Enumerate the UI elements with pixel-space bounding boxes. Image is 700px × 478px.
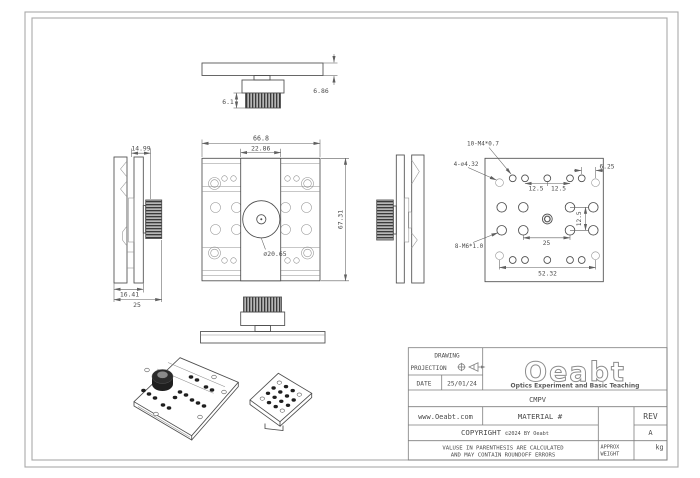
weight-unit: kg xyxy=(656,444,664,452)
top-view-knob-flange xyxy=(242,80,284,93)
iso-assembled-knob xyxy=(152,370,173,392)
disclaimer-line2: AND MAY CONTAIN ROUNDOFF ERRORS xyxy=(451,453,555,459)
dim-left-top: 14.99 xyxy=(131,144,150,152)
right-view-plate-a xyxy=(396,155,404,283)
dim-front-height: 67.31 xyxy=(337,210,345,229)
dim-back-width: 52.32 xyxy=(538,271,557,278)
projection-symbol-icon xyxy=(457,363,485,371)
date-label: DATE xyxy=(417,380,432,387)
left-view-plate-b xyxy=(134,157,143,283)
left-view-knob-collar xyxy=(143,206,145,234)
back-view: 10-M4*0.7 4-⌀4.32 8-M6*1.0 6.25 12.5 12.… xyxy=(454,142,615,282)
right-view-knob-collar xyxy=(393,206,396,234)
disclaimer-line1: VALUSE IN PARENTHESIS ARE CALCULATED xyxy=(442,445,564,451)
label-cbore-holes: 4-⌀4.32 xyxy=(454,162,479,168)
dim-left-bottom: 16.41 xyxy=(120,290,139,298)
front-view: 66.8 22.86 67.31 ⌀20.65 xyxy=(202,135,349,281)
brand-tagline: Optics Experiment and Basic Teaching xyxy=(511,383,640,390)
dim-back-pitch-b: 12.5 xyxy=(551,186,566,193)
back-view-m4-holes xyxy=(509,175,585,263)
part-number: CMPV xyxy=(529,396,547,404)
iso-plate-face xyxy=(250,373,312,421)
dim-back-edge: 6.25 xyxy=(600,164,615,171)
bottom-view-knob-flange xyxy=(241,312,285,326)
dim-top-plate-thickness: 6.86 xyxy=(313,87,329,95)
iso-plate-view xyxy=(250,373,312,430)
label-m6-holes: 8-M6*1.0 xyxy=(455,244,484,250)
left-view-plate-a xyxy=(114,157,127,283)
weight-label-line2: WEIGHT xyxy=(601,452,620,458)
back-view-corner-holes xyxy=(496,179,600,260)
dim-top-knob-height: 6.1 xyxy=(222,98,234,106)
copyright-notice: ©2024 BY Oeabt xyxy=(505,431,549,437)
dim-back-center: 25 xyxy=(543,240,551,247)
iso-assembled-view xyxy=(134,358,238,440)
top-view-knob-cap xyxy=(254,76,270,81)
back-view-center-hole xyxy=(542,214,552,224)
projection-label-line2: PROJECTION xyxy=(411,365,448,372)
dim-front-slider-width: 22.86 xyxy=(251,145,270,153)
bottom-view xyxy=(201,297,326,343)
drawing-sheet: 6.1 6.86 xyxy=(0,0,700,478)
sheet-frame-outer xyxy=(25,12,678,467)
top-view-plate xyxy=(202,63,323,76)
rev-label: REV xyxy=(643,412,658,421)
left-view-carriage xyxy=(129,198,135,242)
dim-left-total: 25 xyxy=(133,301,141,309)
right-side-view xyxy=(377,155,424,283)
weight-label-line1: APPROX xyxy=(601,445,621,451)
date-value: 25/01/24 xyxy=(447,380,477,387)
material-label: MATERIAL # xyxy=(518,412,563,421)
left-side-view: 14.99 16.41 25 xyxy=(114,144,162,309)
right-view-notches xyxy=(408,160,419,248)
bottom-view-knob-cap xyxy=(255,326,271,332)
rev-value: A xyxy=(648,429,653,437)
dim-front-width: 66.8 xyxy=(253,135,269,143)
cad-drawing-canvas: 6.1 6.86 xyxy=(0,0,700,478)
label-m4-holes: 10-M4*0.7 xyxy=(467,142,499,148)
front-view-center-mark xyxy=(260,218,262,220)
top-view: 6.1 6.86 xyxy=(202,54,338,108)
left-view-knob-knurl xyxy=(146,200,162,239)
bottom-view-plate xyxy=(201,332,326,344)
dim-back-pitch-a: 12.5 xyxy=(529,186,544,193)
copyright-word: COPYRIGHT xyxy=(461,428,502,437)
top-view-knob-knurl xyxy=(246,93,281,108)
projection-label-line1: DRAWING xyxy=(434,353,460,360)
bottom-view-knob-knurl xyxy=(244,297,282,312)
title-block: DRAWING PROJECTION DATE 25/01/24 Oeabt O… xyxy=(408,348,667,460)
right-view-knob-knurl xyxy=(377,200,394,240)
iso-assembled-plate xyxy=(134,358,238,436)
dim-front-bore: ⌀20.65 xyxy=(263,250,286,258)
website: www.Oeabt.com xyxy=(418,413,473,421)
dim-back-pitch-v: 12.5 xyxy=(576,211,583,226)
